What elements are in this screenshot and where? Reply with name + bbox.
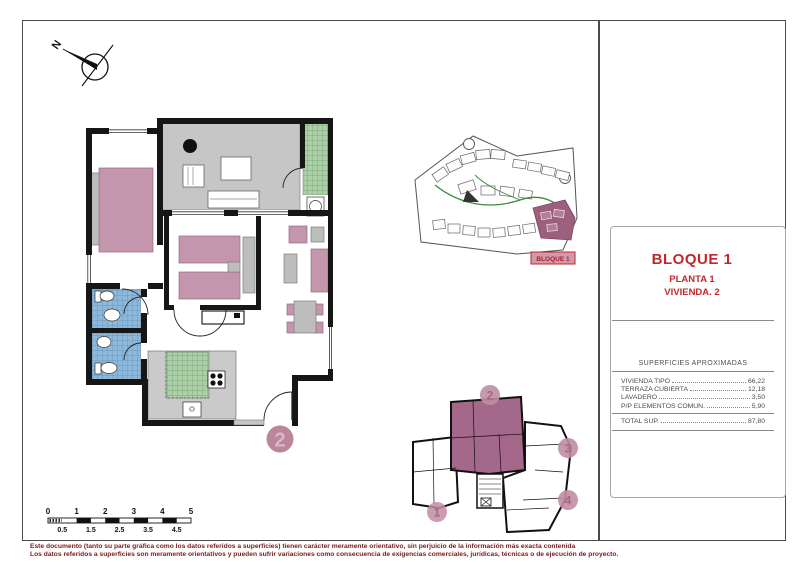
dotted-leader xyxy=(661,422,746,423)
unit-badge-1: 1 xyxy=(434,506,441,520)
floor-plan-unit-badge: 2 xyxy=(267,426,294,453)
row-label: P/P ELEMENTOS COMUN. xyxy=(621,403,705,410)
scale-bar: 0 1 2 3 4 5 0.5 1.5 2.5 3.5 4.5 xyxy=(40,503,205,537)
floor-label: PLANTA 1 xyxy=(599,274,785,285)
disclaimer-line-2: Los datos referidos a superficies son me… xyxy=(30,551,792,559)
table-row: LAVADERO 3,50 xyxy=(621,394,765,402)
svg-text:2: 2 xyxy=(103,507,108,516)
living-coffee-table xyxy=(284,254,297,283)
stove-icon xyxy=(208,371,225,388)
sink-icon xyxy=(104,309,120,321)
svg-text:2: 2 xyxy=(274,430,285,452)
areas-table-total: TOTAL SUP. 87,80 xyxy=(621,418,765,426)
svg-text:4: 4 xyxy=(160,507,165,516)
divider-line xyxy=(612,371,774,372)
divider-line xyxy=(612,320,774,321)
areas-table-header: SUPERFICIES APROXIMADAS xyxy=(612,360,774,367)
table-row: VIVIENDA TIPO 66,22 xyxy=(621,378,765,386)
entry-threshold xyxy=(234,420,264,425)
svg-text:1.5: 1.5 xyxy=(86,527,96,534)
unit-label: VIVIENDA. 2 xyxy=(599,287,785,298)
dotted-leader xyxy=(672,382,746,383)
living-side-table xyxy=(311,227,324,242)
kitchen-tile-floor xyxy=(166,352,209,398)
living-sofa xyxy=(311,249,328,292)
dotted-leader xyxy=(659,398,750,399)
row-label: VIVIENDA TIPO xyxy=(621,378,670,385)
svg-text:0: 0 xyxy=(46,507,51,516)
bedroom2-bed-2 xyxy=(179,272,240,299)
scale-minor-labels: 0.5 1.5 2.5 3.5 4.5 xyxy=(57,527,181,534)
site-plan: BLOQUE 1 xyxy=(405,130,585,272)
row-value: 5,90 xyxy=(752,403,765,410)
divider-line xyxy=(612,413,774,414)
compass-north-icon: N xyxy=(33,28,128,93)
block-title: BLOQUE 1 xyxy=(599,251,785,268)
svg-text:1: 1 xyxy=(74,507,79,516)
laundry-tile-floor xyxy=(303,122,328,195)
svg-text:3.5: 3.5 xyxy=(143,527,153,534)
bedroom2-wardrobe xyxy=(243,237,255,293)
dining-table xyxy=(294,301,316,333)
plan-sheet-page: { "title_block": { "block_name": "BLOQUE… xyxy=(0,0,800,563)
row-value: 87,80 xyxy=(748,418,765,425)
row-label: LAVADERO xyxy=(621,394,657,401)
table-row: TERRAZA CUBIERTA 12,18 xyxy=(621,386,765,394)
disclaimer-line-1: Este documento (tanto su parte gráfica c… xyxy=(30,543,792,551)
bedroom1-bed xyxy=(99,168,153,252)
key-plan-core xyxy=(477,474,503,508)
table-row: P/P ELEMENTOS COMUN. 5,90 xyxy=(621,403,765,411)
sink-icon xyxy=(97,337,111,348)
row-value: 12,18 xyxy=(748,386,765,393)
unit-badge-3: 3 xyxy=(565,442,572,456)
row-value: 3,50 xyxy=(752,394,765,401)
unit-badge-4: 4 xyxy=(565,494,572,508)
svg-text:0.5: 0.5 xyxy=(57,527,67,534)
svg-text:BLOQUE 1: BLOQUE 1 xyxy=(536,256,570,263)
terrace-bench xyxy=(208,191,259,208)
areas-table: VIVIENDA TIPO 66,22 TERRAZA CUBIERTA 12,… xyxy=(621,378,765,411)
key-plan-unit-2-highlighted xyxy=(451,397,525,474)
terrace-chair xyxy=(183,165,204,187)
kitchen-sink-icon xyxy=(183,402,201,417)
svg-text:2.5: 2.5 xyxy=(115,527,125,534)
svg-text:5: 5 xyxy=(189,507,194,516)
total-row: TOTAL SUP. 87,80 xyxy=(621,418,765,426)
floor-plan: 2 xyxy=(82,115,337,453)
toilet-icon xyxy=(95,363,101,374)
scale-major-labels: 0 1 2 3 4 5 xyxy=(46,507,194,516)
dotted-leader xyxy=(707,407,750,408)
unit-badge-2: 2 xyxy=(487,389,494,403)
living-armchair xyxy=(289,226,307,243)
terrace-table xyxy=(221,157,251,180)
row-value: 66,22 xyxy=(748,378,765,385)
dotted-leader xyxy=(690,390,746,391)
north-label: N xyxy=(50,38,64,51)
bedroom2-nightstand xyxy=(228,262,240,272)
row-label: TOTAL SUP. xyxy=(621,418,659,425)
disclaimer: Este documento (tanto su parte gráfica c… xyxy=(30,543,792,559)
bedroom2-bed-1 xyxy=(179,236,240,263)
site-block-label: BLOQUE 1 xyxy=(531,252,575,264)
terrace-table-round xyxy=(183,139,197,153)
divider-line xyxy=(612,430,774,431)
key-plan: 1 2 3 4 xyxy=(403,382,583,537)
row-label: TERRAZA CUBIERTA xyxy=(621,386,688,393)
svg-text:4.5: 4.5 xyxy=(172,527,182,534)
svg-text:3: 3 xyxy=(132,507,137,516)
